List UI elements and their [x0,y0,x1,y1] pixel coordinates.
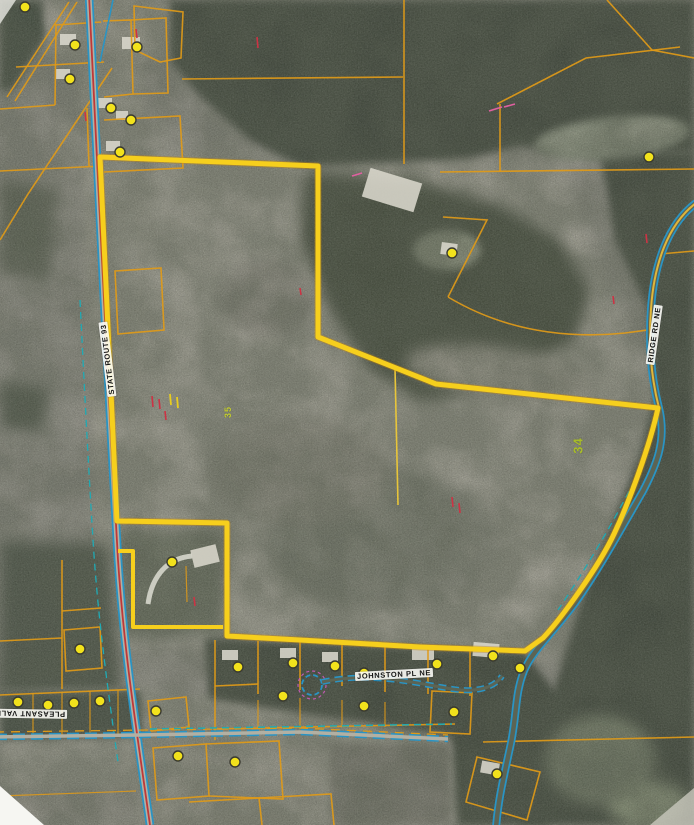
house-marker [151,706,161,716]
house-marker [492,769,502,779]
house-marker [233,662,243,672]
house-marker [65,74,75,84]
house-marker [106,103,116,113]
house-marker [126,115,136,125]
house-marker [447,248,457,258]
house-marker [167,557,177,567]
house-marker [644,152,654,162]
label-pleasant-valley-rd: PLEASANT VALLEY RD [0,708,67,719]
house-marker [432,659,442,669]
house-marker [515,663,525,673]
house-marker [132,42,142,52]
house-marker [359,701,369,711]
house-marker [75,644,85,654]
map-canvas [0,0,694,825]
house-marker [230,757,240,767]
house-marker [70,40,80,50]
aerial-parcel-map: STATE ROUTE 93 RIDGE RD NE JOHNSTON PL N… [0,0,694,825]
label-parcel-35: 35 [223,406,233,418]
house-marker [330,661,340,671]
house-marker [278,691,288,701]
house-marker [173,751,183,761]
house-marker [288,658,298,668]
house-marker [95,696,105,706]
house-marker [20,2,30,12]
label-parcel-34: 34 [571,437,586,453]
house-marker [449,707,459,717]
house-marker [488,651,498,661]
house-marker [69,698,79,708]
house-marker [13,697,23,707]
house-marker [115,147,125,157]
